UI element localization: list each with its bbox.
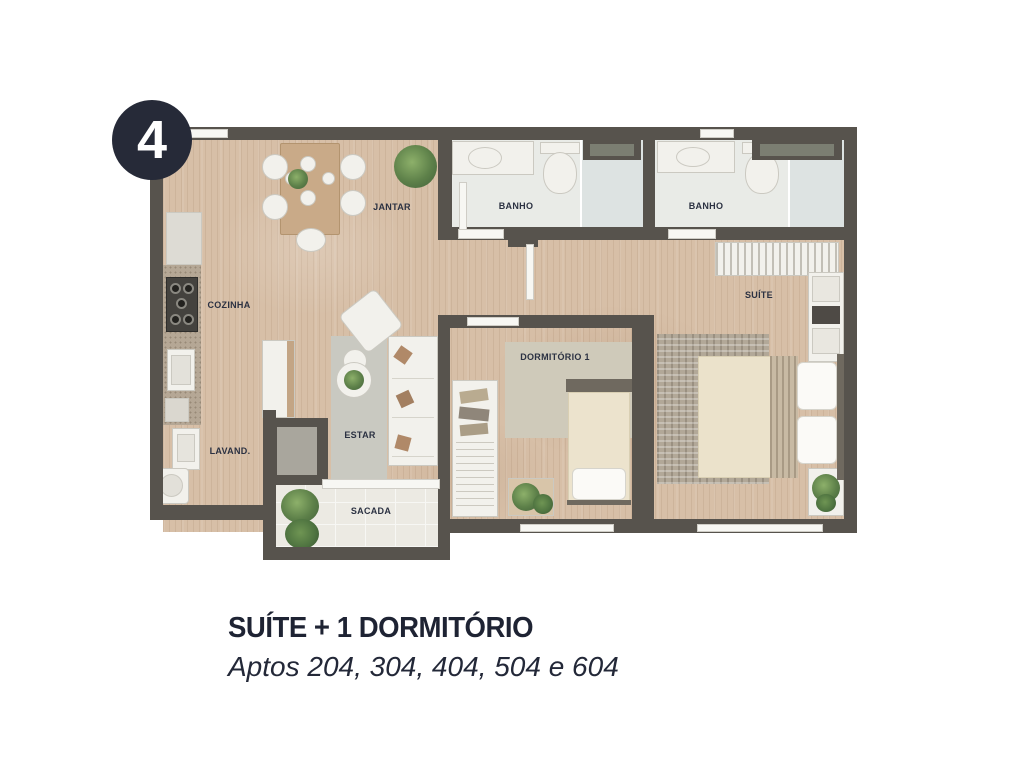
double-bed-duvet — [698, 356, 772, 478]
balcony-sliding-door — [322, 479, 440, 489]
wall-balcony-right — [438, 462, 450, 560]
wall-bedroom-suite — [632, 315, 654, 519]
cutlery-tray — [165, 398, 189, 422]
room-label-banho-2: BANHO — [676, 201, 736, 211]
suite-pillow — [797, 362, 837, 410]
dining-chair — [340, 154, 366, 180]
toilet-bowl — [543, 152, 577, 194]
plan-subtitle: Aptos 204, 304, 404, 504 e 604 — [228, 651, 619, 683]
kitchen-sink-basin — [171, 355, 191, 385]
planter-inset — [277, 427, 317, 475]
bedroom-1-door-gap — [467, 317, 519, 326]
bed-headboard — [566, 379, 632, 392]
room-label-cozinha: COZINHA — [194, 300, 264, 310]
room-label-estar: ESTAR — [325, 430, 395, 440]
stove-burner — [176, 298, 187, 309]
room-label-sacada: SACADA — [336, 506, 406, 516]
wardrobe-shelves — [456, 442, 494, 512]
bathroom-1-sink — [468, 147, 502, 169]
vent-grille — [760, 144, 834, 156]
washing-machine-drum — [160, 474, 183, 497]
vent-grille — [590, 144, 634, 156]
bedroom-1-window — [520, 524, 614, 532]
balcony-plant — [281, 489, 319, 523]
unit-number: 4 — [137, 113, 167, 167]
unit-number-badge: 4 — [112, 100, 192, 180]
bathroom-1-door-leaf — [459, 182, 467, 230]
balcony-plant — [285, 519, 319, 549]
laundry-tank-basin — [177, 434, 195, 462]
bed-duvet — [572, 468, 626, 500]
palm-plant — [394, 145, 437, 188]
refrigerator — [166, 212, 202, 265]
bedroom-1-plant — [533, 494, 553, 514]
window-top-right — [700, 129, 734, 138]
wall-top — [150, 127, 847, 140]
plate — [322, 172, 335, 185]
wall-right — [844, 127, 857, 533]
dresser-drawer — [812, 328, 840, 354]
room-label-suite: SUÍTE — [724, 290, 794, 300]
stove-burner — [183, 314, 194, 325]
coffee-table-plant — [344, 370, 364, 390]
wall-between-bathrooms — [643, 140, 655, 240]
dining-chair — [262, 154, 288, 180]
tv-cabinet-wood-edge — [287, 341, 294, 417]
bathroom-1-door-gap — [458, 229, 504, 239]
wall-bedroom-1-left — [438, 315, 450, 462]
corridor-door-leaf — [526, 244, 534, 300]
suite-plant — [816, 494, 836, 512]
wall-left — [150, 127, 163, 520]
suite-wardrobe — [715, 242, 839, 276]
plate — [300, 190, 316, 206]
dresser-drawer-dark — [812, 306, 840, 324]
bathroom-2-sink — [676, 147, 710, 167]
stove-burner — [170, 283, 181, 294]
dining-chair — [262, 194, 288, 220]
wall-balcony-bottom — [263, 547, 450, 560]
suite-window — [697, 524, 823, 532]
wall-bottom-left — [150, 505, 276, 520]
window-top-left — [190, 129, 228, 138]
double-bed-blanket — [770, 356, 798, 478]
stove-burner — [170, 314, 181, 325]
dining-chair — [296, 228, 326, 252]
bed-foot-frame — [567, 500, 631, 505]
suite-pillow — [797, 416, 837, 464]
table-plant — [288, 169, 308, 189]
room-label-dormitorio-1: DORMITÓRIO 1 — [495, 352, 615, 362]
room-label-banho-1: BANHO — [486, 201, 546, 211]
stove-burner — [183, 283, 194, 294]
plan-title: SUÍTE + 1 DORMITÓRIO — [228, 612, 533, 645]
dresser-drawer — [812, 276, 840, 302]
bathroom-2-door-gap — [668, 229, 716, 239]
room-label-lavanderia: LAVAND. — [195, 446, 265, 456]
floorplan-page: 4 — [0, 0, 1012, 768]
room-label-jantar: JANTAR — [357, 202, 427, 212]
wall-bathroom-1-left — [438, 127, 452, 240]
